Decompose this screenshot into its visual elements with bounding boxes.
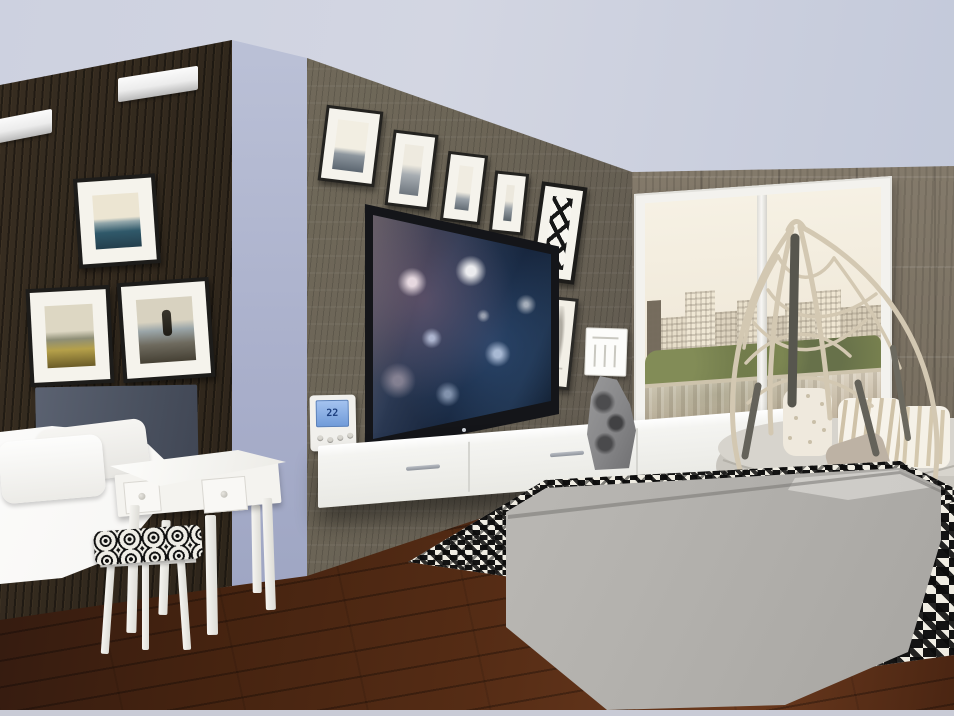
frame-mat — [30, 289, 111, 383]
room-render: 22 — [0, 0, 954, 716]
photo-stone-cairn — [136, 296, 196, 364]
drawer-handle — [406, 464, 440, 471]
stool-leg — [142, 562, 149, 650]
desk-leg — [205, 515, 218, 635]
console-seam — [468, 442, 470, 492]
photo-bw-seascape — [399, 144, 424, 196]
photo-beach-dunes — [44, 304, 95, 368]
frame-mat — [388, 133, 435, 207]
console-seam — [636, 428, 638, 478]
tv-glare — [373, 215, 551, 439]
thermostat-button — [327, 437, 333, 443]
frame-seaside-pier-photo — [73, 173, 161, 269]
frame-mat — [321, 108, 380, 184]
frame-bw-seascape-1 — [318, 105, 384, 187]
desk-drawer — [201, 476, 248, 514]
photo-bw-seascape — [332, 119, 369, 172]
cairn-stack — [162, 309, 173, 336]
thermostat-display: 22 — [316, 400, 349, 428]
thermostat-button — [337, 435, 343, 441]
frame-bw-seascape-2 — [385, 130, 439, 211]
desk-leg — [251, 505, 262, 593]
drawer-handle — [550, 451, 584, 458]
tv — [365, 204, 559, 454]
thermostat-button — [347, 433, 353, 439]
frame-mat — [121, 281, 211, 379]
photo-bw-seascape — [503, 185, 515, 222]
frame-mat — [77, 178, 157, 265]
frame-mat — [443, 154, 485, 222]
image-bottom-strip — [0, 710, 954, 716]
drawer-knob — [220, 490, 228, 498]
tv-logo — [462, 428, 466, 432]
panel-mark — [593, 345, 596, 367]
frame-beach-dunes-photo — [25, 285, 114, 387]
panel-mark — [603, 345, 606, 367]
photo-bw-seascape — [454, 165, 473, 210]
wall-panel — [584, 327, 628, 376]
frame-bw-seascape-3 — [440, 151, 488, 225]
drawer-knob — [138, 493, 146, 501]
frame-stone-cairn-photo — [117, 277, 216, 383]
frame-bw-seascape-4 — [489, 170, 529, 235]
photo-seaside-pier — [92, 192, 142, 249]
frame-mat — [492, 174, 526, 233]
panel-mark — [613, 345, 616, 367]
tv-screen — [373, 215, 551, 439]
bed-pillow — [0, 434, 107, 505]
thermostat-button — [317, 435, 323, 441]
panel-mark — [592, 337, 618, 340]
